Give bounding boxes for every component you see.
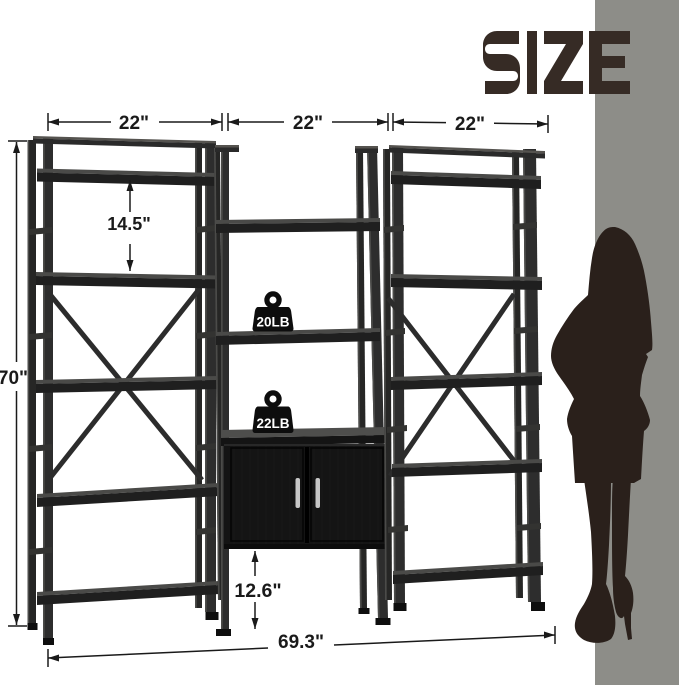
- svg-text:70": 70": [0, 368, 28, 389]
- svg-text:22LB: 22LB: [256, 416, 289, 431]
- svg-text:69.3": 69.3": [278, 632, 324, 653]
- svg-text:22": 22": [455, 114, 485, 135]
- svg-text:14.5": 14.5": [107, 214, 151, 234]
- svg-text:20LB: 20LB: [256, 315, 289, 330]
- svg-text:22": 22": [119, 113, 149, 134]
- svg-text:22": 22": [293, 113, 323, 134]
- svg-text:12.6": 12.6": [234, 580, 281, 602]
